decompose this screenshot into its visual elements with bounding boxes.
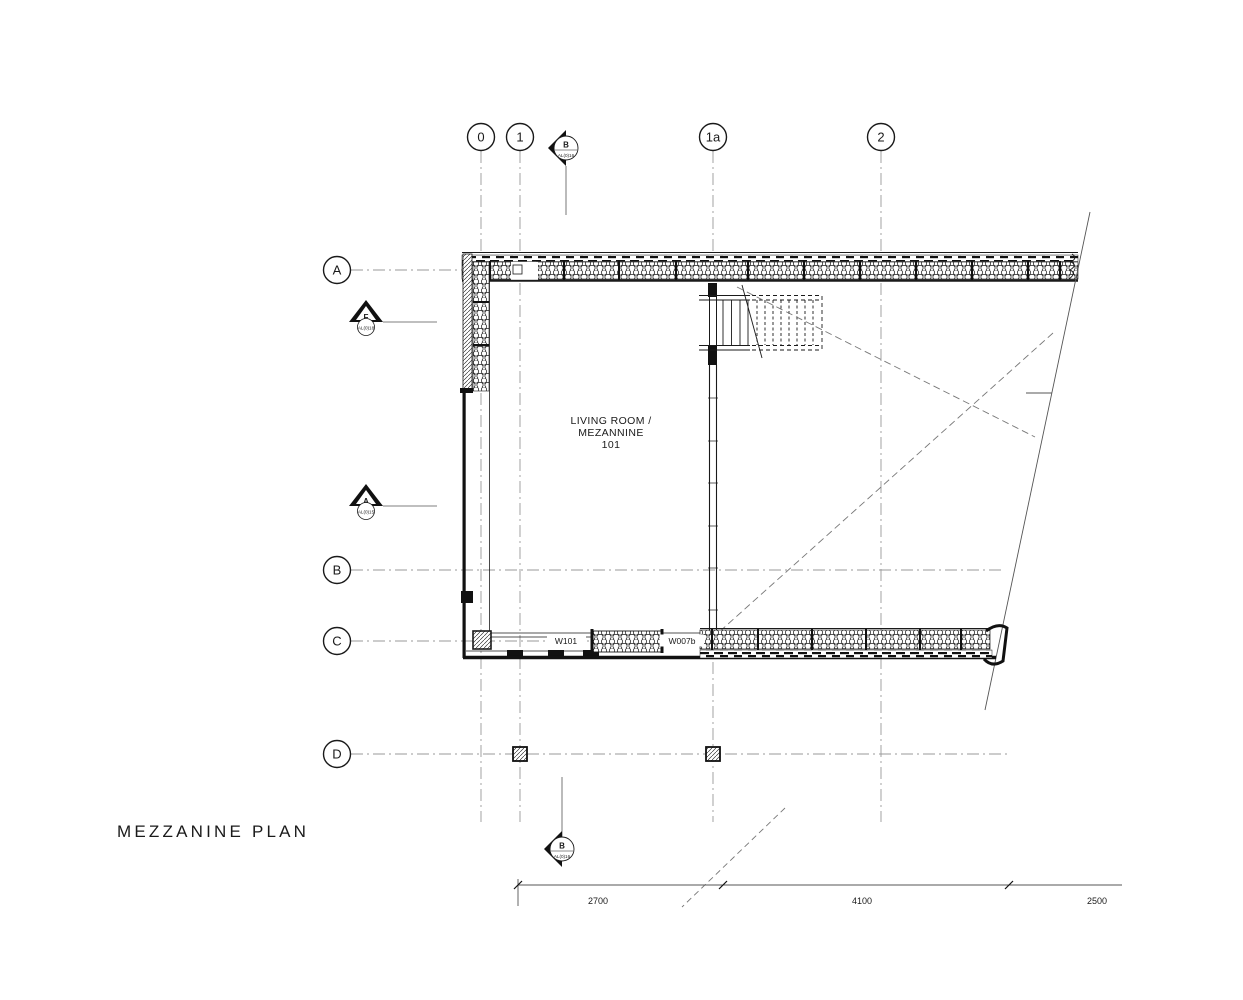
interior-wall-1a: [708, 283, 718, 640]
grid-bubble-1-label: 1: [516, 130, 523, 145]
dimension-4100: 4100: [852, 896, 872, 906]
plan-drawing: 0 1 1a 2 A B C D B AL(0)16 F AL(0)18: [0, 0, 1243, 1000]
grid-bubble-2-label: 2: [877, 130, 884, 145]
dimension-2500: 2500: [1087, 896, 1107, 906]
post-symbol: [513, 265, 522, 274]
roof-edge-line: [985, 212, 1090, 710]
mezzanine-edge: [463, 392, 466, 658]
wall-tag-w101: W101: [555, 636, 577, 646]
section-letter: B: [563, 141, 569, 150]
grid-bubble-b-label: B: [333, 563, 342, 578]
column-d1: [513, 747, 527, 761]
elevation-marker-f: F AL(0)18: [349, 300, 437, 336]
wall-end-cap: [460, 388, 473, 393]
elevation-sheet: AL(0)15: [358, 510, 375, 515]
void-diagonal-1: [737, 287, 1035, 437]
wall-segment-hatched-1: [592, 631, 663, 652]
stair-hidden-edges: [752, 296, 822, 351]
room-name-line2: MEZANNINE: [578, 427, 643, 439]
grid-lines: [351, 151, 1010, 822]
row-grid-bubbles: A B C D: [324, 257, 351, 768]
stair: [699, 285, 822, 358]
dimension-2700: 2700: [588, 896, 608, 906]
room-label: LIVING ROOM / MEZANNINE 101: [570, 415, 651, 451]
grid-bubble-0-label: 0: [477, 130, 484, 145]
wall-segment-hatched-2: [700, 630, 990, 649]
column-grid-bubbles: 0 1 1a 2: [468, 124, 895, 151]
top-exterior-wall: [462, 253, 1078, 281]
bottom-wall: [463, 626, 1007, 664]
elevation-sheet: AL(0)18: [358, 326, 375, 331]
grid-bubble-c-label: C: [332, 634, 341, 649]
section-sheet: AL(0)16: [558, 153, 575, 158]
grid-bubble-1a-label: 1a: [706, 130, 721, 145]
elevation-marker-a: A AL(0)15: [349, 484, 437, 520]
section-sheet: AL(0)16: [554, 854, 571, 859]
column-c0: [473, 631, 491, 649]
mezzanine-plan-sheet: 0 1 1a 2 A B C D B AL(0)16 F AL(0)18: [0, 0, 1243, 1000]
void-diagonal-2: [718, 333, 1053, 633]
column-d1a: [706, 747, 720, 761]
section-marker-b-bottom: B AL(0)16: [544, 777, 574, 867]
left-wall: [460, 254, 490, 658]
grid-bubble-d-label: D: [332, 747, 341, 762]
stair-break-line: [742, 285, 762, 358]
section-marker-b-top: B AL(0)16: [548, 130, 578, 215]
room-number: 101: [602, 439, 621, 451]
stair-treads: [723, 300, 748, 345]
dimension-line: 2700 4100 2500: [514, 879, 1122, 906]
reference-diagonal: [682, 808, 785, 907]
stair-treads-hidden: [757, 300, 813, 345]
wall-tag-w007b: W007b: [669, 636, 696, 646]
void-diagonals: [718, 287, 1053, 633]
room-name-line1: LIVING ROOM /: [570, 415, 651, 427]
wall-block: [461, 591, 473, 603]
grid-bubble-a-label: A: [333, 263, 342, 278]
plan-title: MEZZANINE PLAN: [117, 822, 309, 841]
section-letter: B: [559, 842, 565, 851]
